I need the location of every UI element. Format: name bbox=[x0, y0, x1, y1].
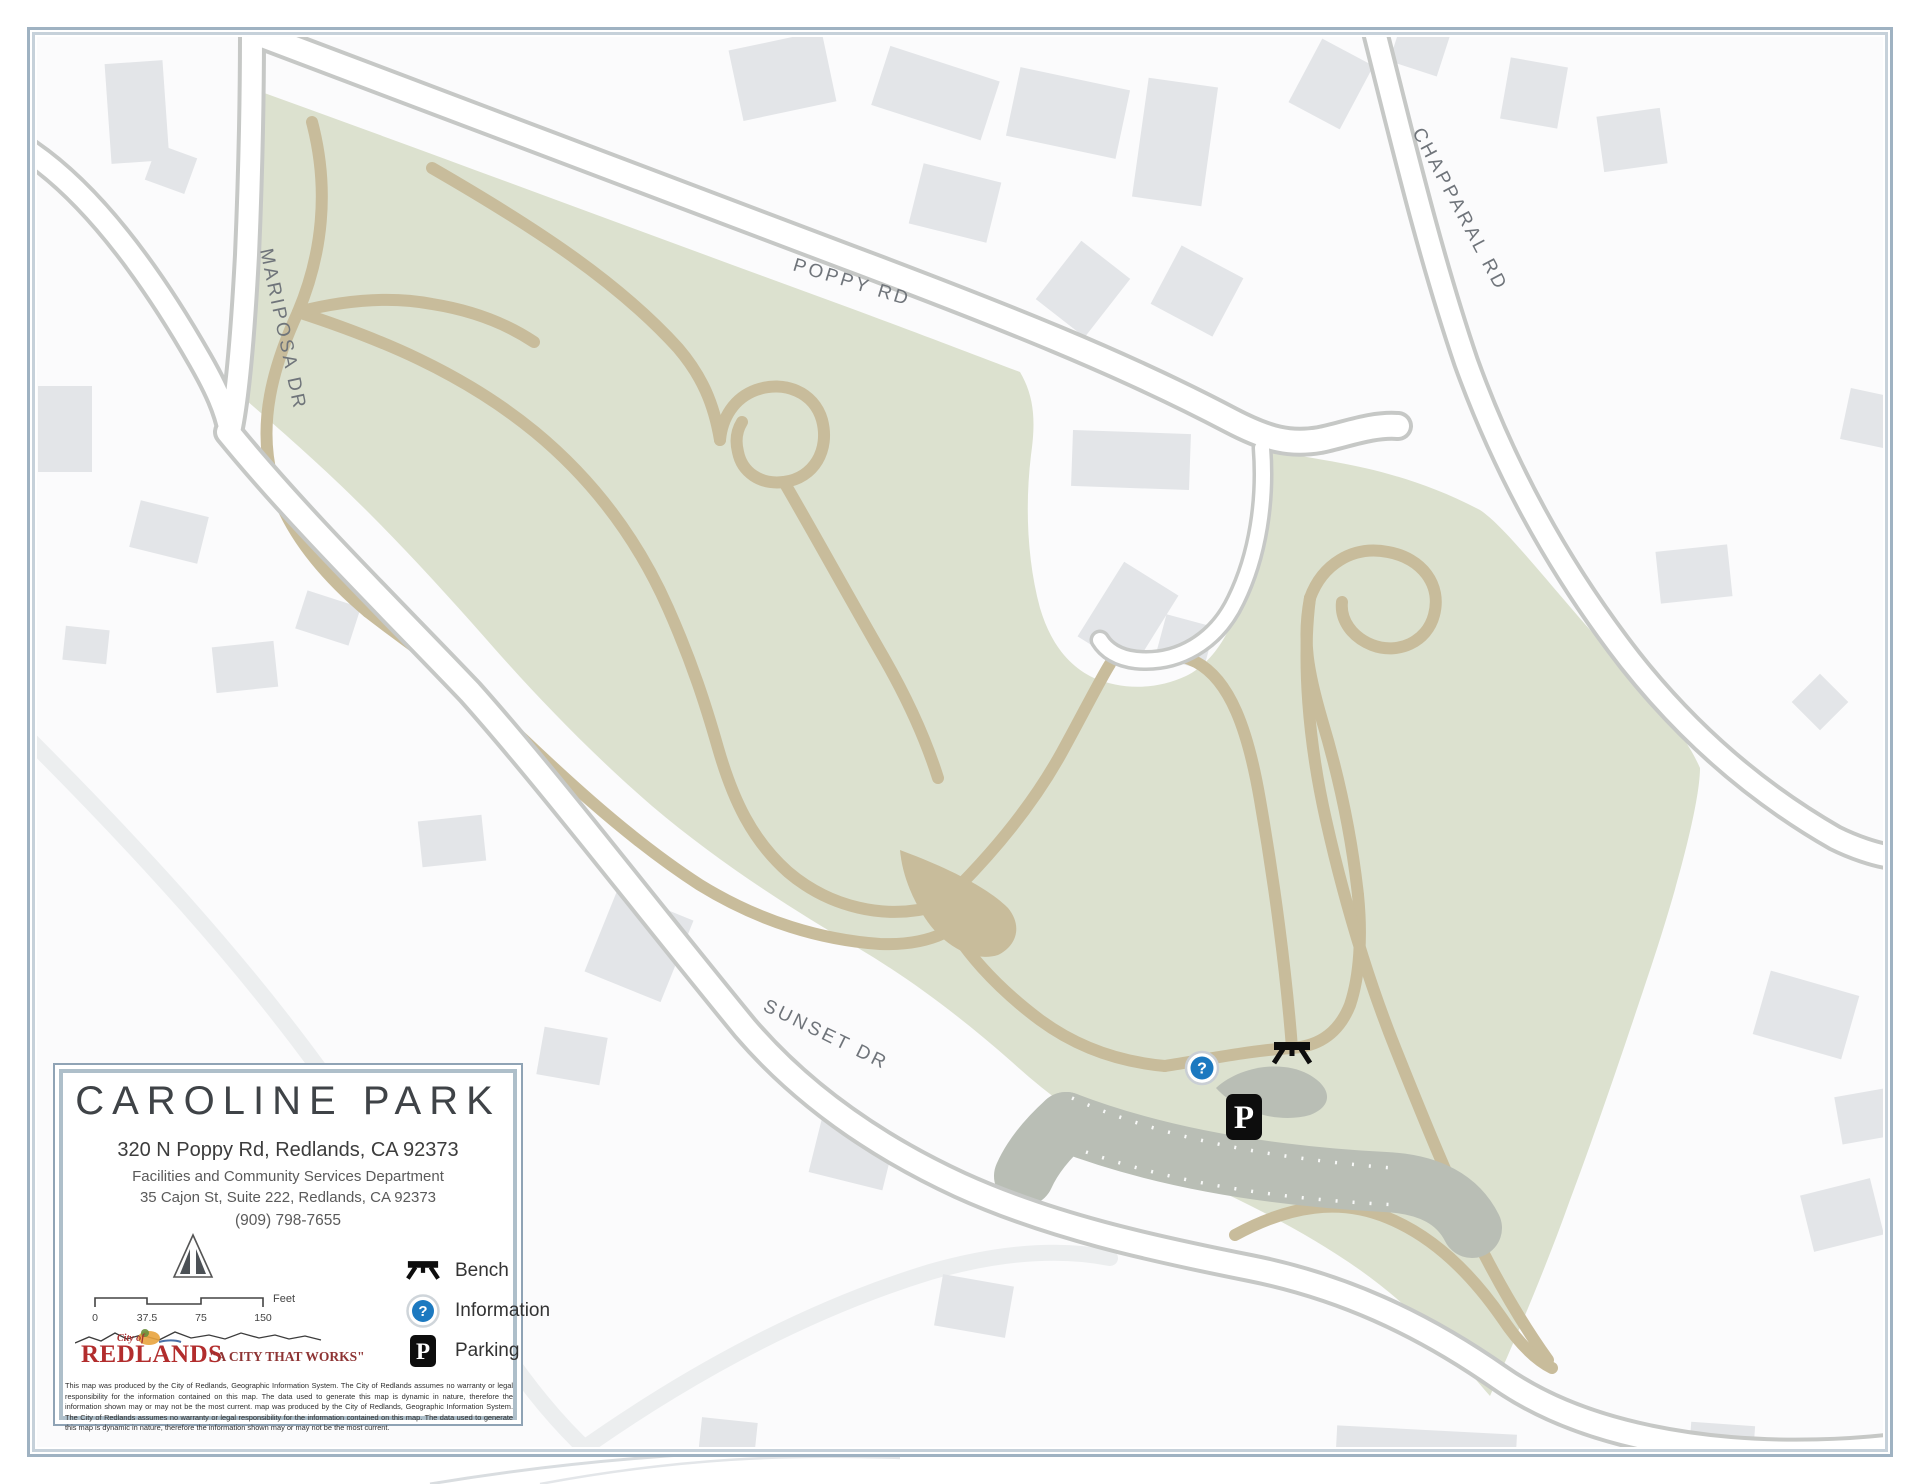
scale-tick-75: 75 bbox=[195, 1312, 207, 1324]
phone-number: (909) 798-7655 bbox=[55, 1212, 521, 1230]
page-title: CAROLINE PARK bbox=[55, 1079, 521, 1124]
legend-item-bench: Bench bbox=[405, 1251, 550, 1291]
svg-text:?: ? bbox=[418, 1303, 427, 1320]
legend: Bench ? Information P Parking bbox=[405, 1251, 550, 1371]
north-arrow-icon bbox=[171, 1233, 215, 1281]
logo-tagline: "A CITY THAT WORKS" bbox=[209, 1349, 365, 1365]
parking-marker: P bbox=[1226, 1094, 1262, 1140]
logo-city-name: REDLANDS bbox=[81, 1341, 223, 1369]
scale-tick-0: 0 bbox=[92, 1312, 98, 1324]
legend-label: Bench bbox=[455, 1260, 509, 1282]
parking-icon: P bbox=[405, 1334, 441, 1368]
park-address: 320 N Poppy Rd, Redlands, CA 92373 bbox=[55, 1139, 521, 1162]
title-box: CAROLINE PARK 320 N Poppy Rd, Redlands, … bbox=[53, 1063, 523, 1426]
department-name: Facilities and Community Services Depart… bbox=[55, 1168, 521, 1185]
svg-text:?: ? bbox=[1197, 1061, 1207, 1078]
svg-text:P: P bbox=[416, 1339, 430, 1364]
bench-icon bbox=[405, 1260, 441, 1282]
svg-text:P: P bbox=[1234, 1100, 1254, 1136]
scale-tick-150: 150 bbox=[254, 1312, 272, 1324]
disclaimer-text: This map was produced by the City of Red… bbox=[65, 1381, 513, 1434]
legend-item-information: ? Information bbox=[405, 1291, 550, 1331]
information-icon: ? bbox=[405, 1294, 441, 1328]
legend-item-parking: P Parking bbox=[405, 1331, 550, 1371]
legend-label: Parking bbox=[455, 1340, 519, 1362]
department-address: 35 Cajon St, Suite 222, Redlands, CA 923… bbox=[55, 1189, 521, 1206]
scale-tick-37: 37.5 bbox=[137, 1312, 158, 1324]
scale-unit: Feet bbox=[273, 1293, 295, 1305]
legend-label: Information bbox=[455, 1300, 550, 1322]
city-logo: City of REDLANDS "A CITY THAT WORKS" bbox=[67, 1325, 367, 1375]
information-marker: ? bbox=[1186, 1052, 1218, 1084]
